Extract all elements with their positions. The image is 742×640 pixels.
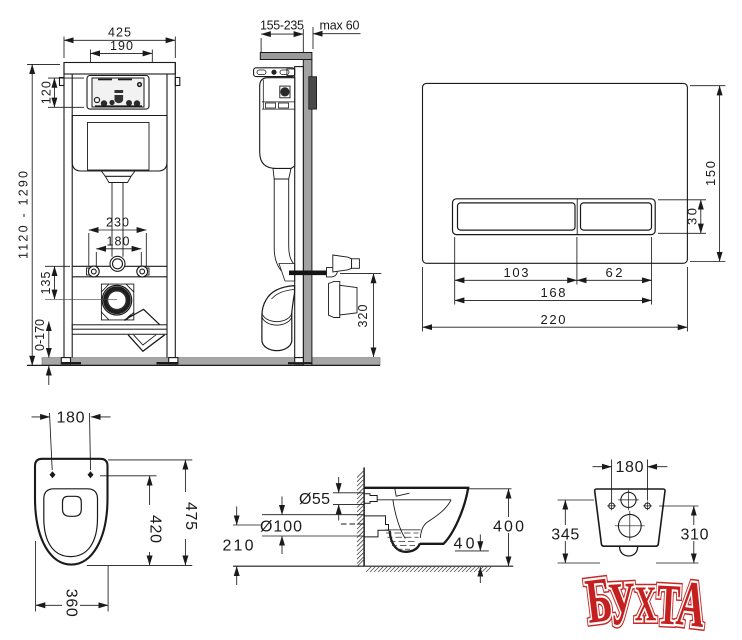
svg-text:1120 - 1290: 1120 - 1290 [17, 171, 31, 259]
svg-text:420: 420 [147, 515, 164, 543]
svg-text:155-235: 155-235 [260, 19, 304, 33]
svg-text:0-170: 0-170 [33, 319, 47, 351]
svg-text:150: 150 [703, 161, 718, 186]
svg-text:Ø55: Ø55 [299, 491, 330, 508]
svg-text:120: 120 [40, 81, 54, 104]
svg-text:180: 180 [616, 459, 644, 476]
svg-text:230: 230 [106, 216, 129, 230]
svg-text:320: 320 [356, 304, 370, 327]
svg-text:168: 168 [541, 285, 566, 300]
svg-text:220: 220 [541, 312, 566, 327]
svg-text:310: 310 [681, 527, 709, 544]
svg-text:400: 400 [493, 519, 524, 536]
svg-text:103: 103 [504, 265, 529, 280]
svg-text:max 60: max 60 [320, 19, 360, 33]
svg-text:Ø100: Ø100 [260, 519, 302, 536]
svg-text:180: 180 [57, 409, 85, 426]
svg-text:135: 135 [39, 271, 53, 294]
svg-text:360: 360 [63, 589, 80, 617]
svg-text:345: 345 [551, 527, 579, 544]
svg-text:180: 180 [107, 234, 130, 248]
svg-text:425: 425 [108, 26, 131, 40]
svg-text:475: 475 [182, 502, 199, 530]
svg-text:210: 210 [223, 538, 254, 555]
svg-text:190: 190 [110, 39, 133, 53]
